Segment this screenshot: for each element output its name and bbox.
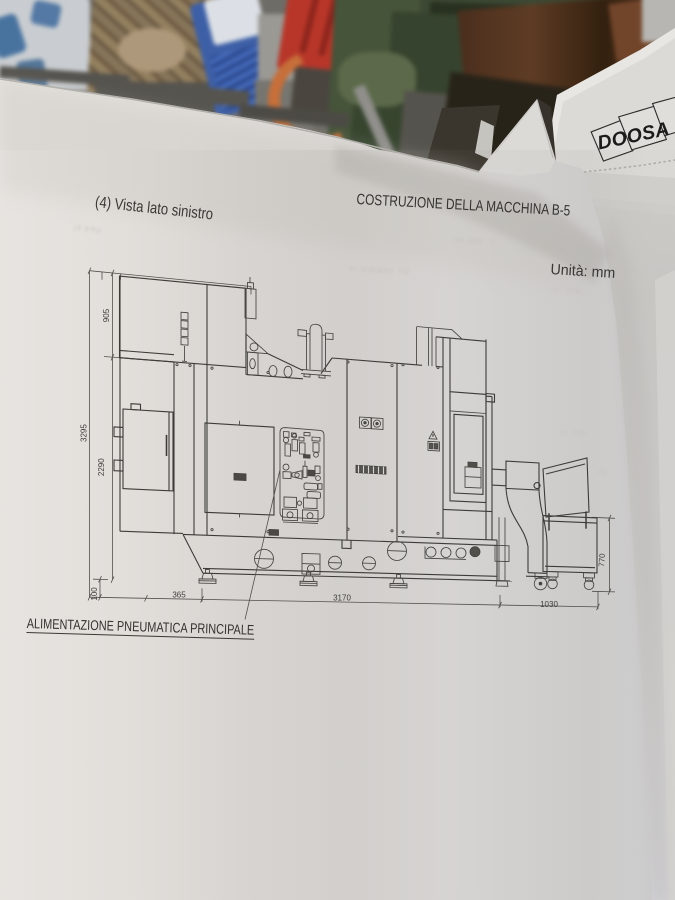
svg-text:3295: 3295 bbox=[80, 424, 89, 442]
svg-text:2290: 2290 bbox=[97, 458, 106, 476]
svg-text:770: 770 bbox=[597, 553, 607, 567]
svg-text:365: 365 bbox=[172, 591, 186, 600]
svg-text:1030: 1030 bbox=[540, 600, 558, 609]
svg-text:905: 905 bbox=[102, 308, 111, 322]
svg-text:3170: 3170 bbox=[333, 594, 351, 603]
svg-text:100: 100 bbox=[90, 587, 99, 601]
